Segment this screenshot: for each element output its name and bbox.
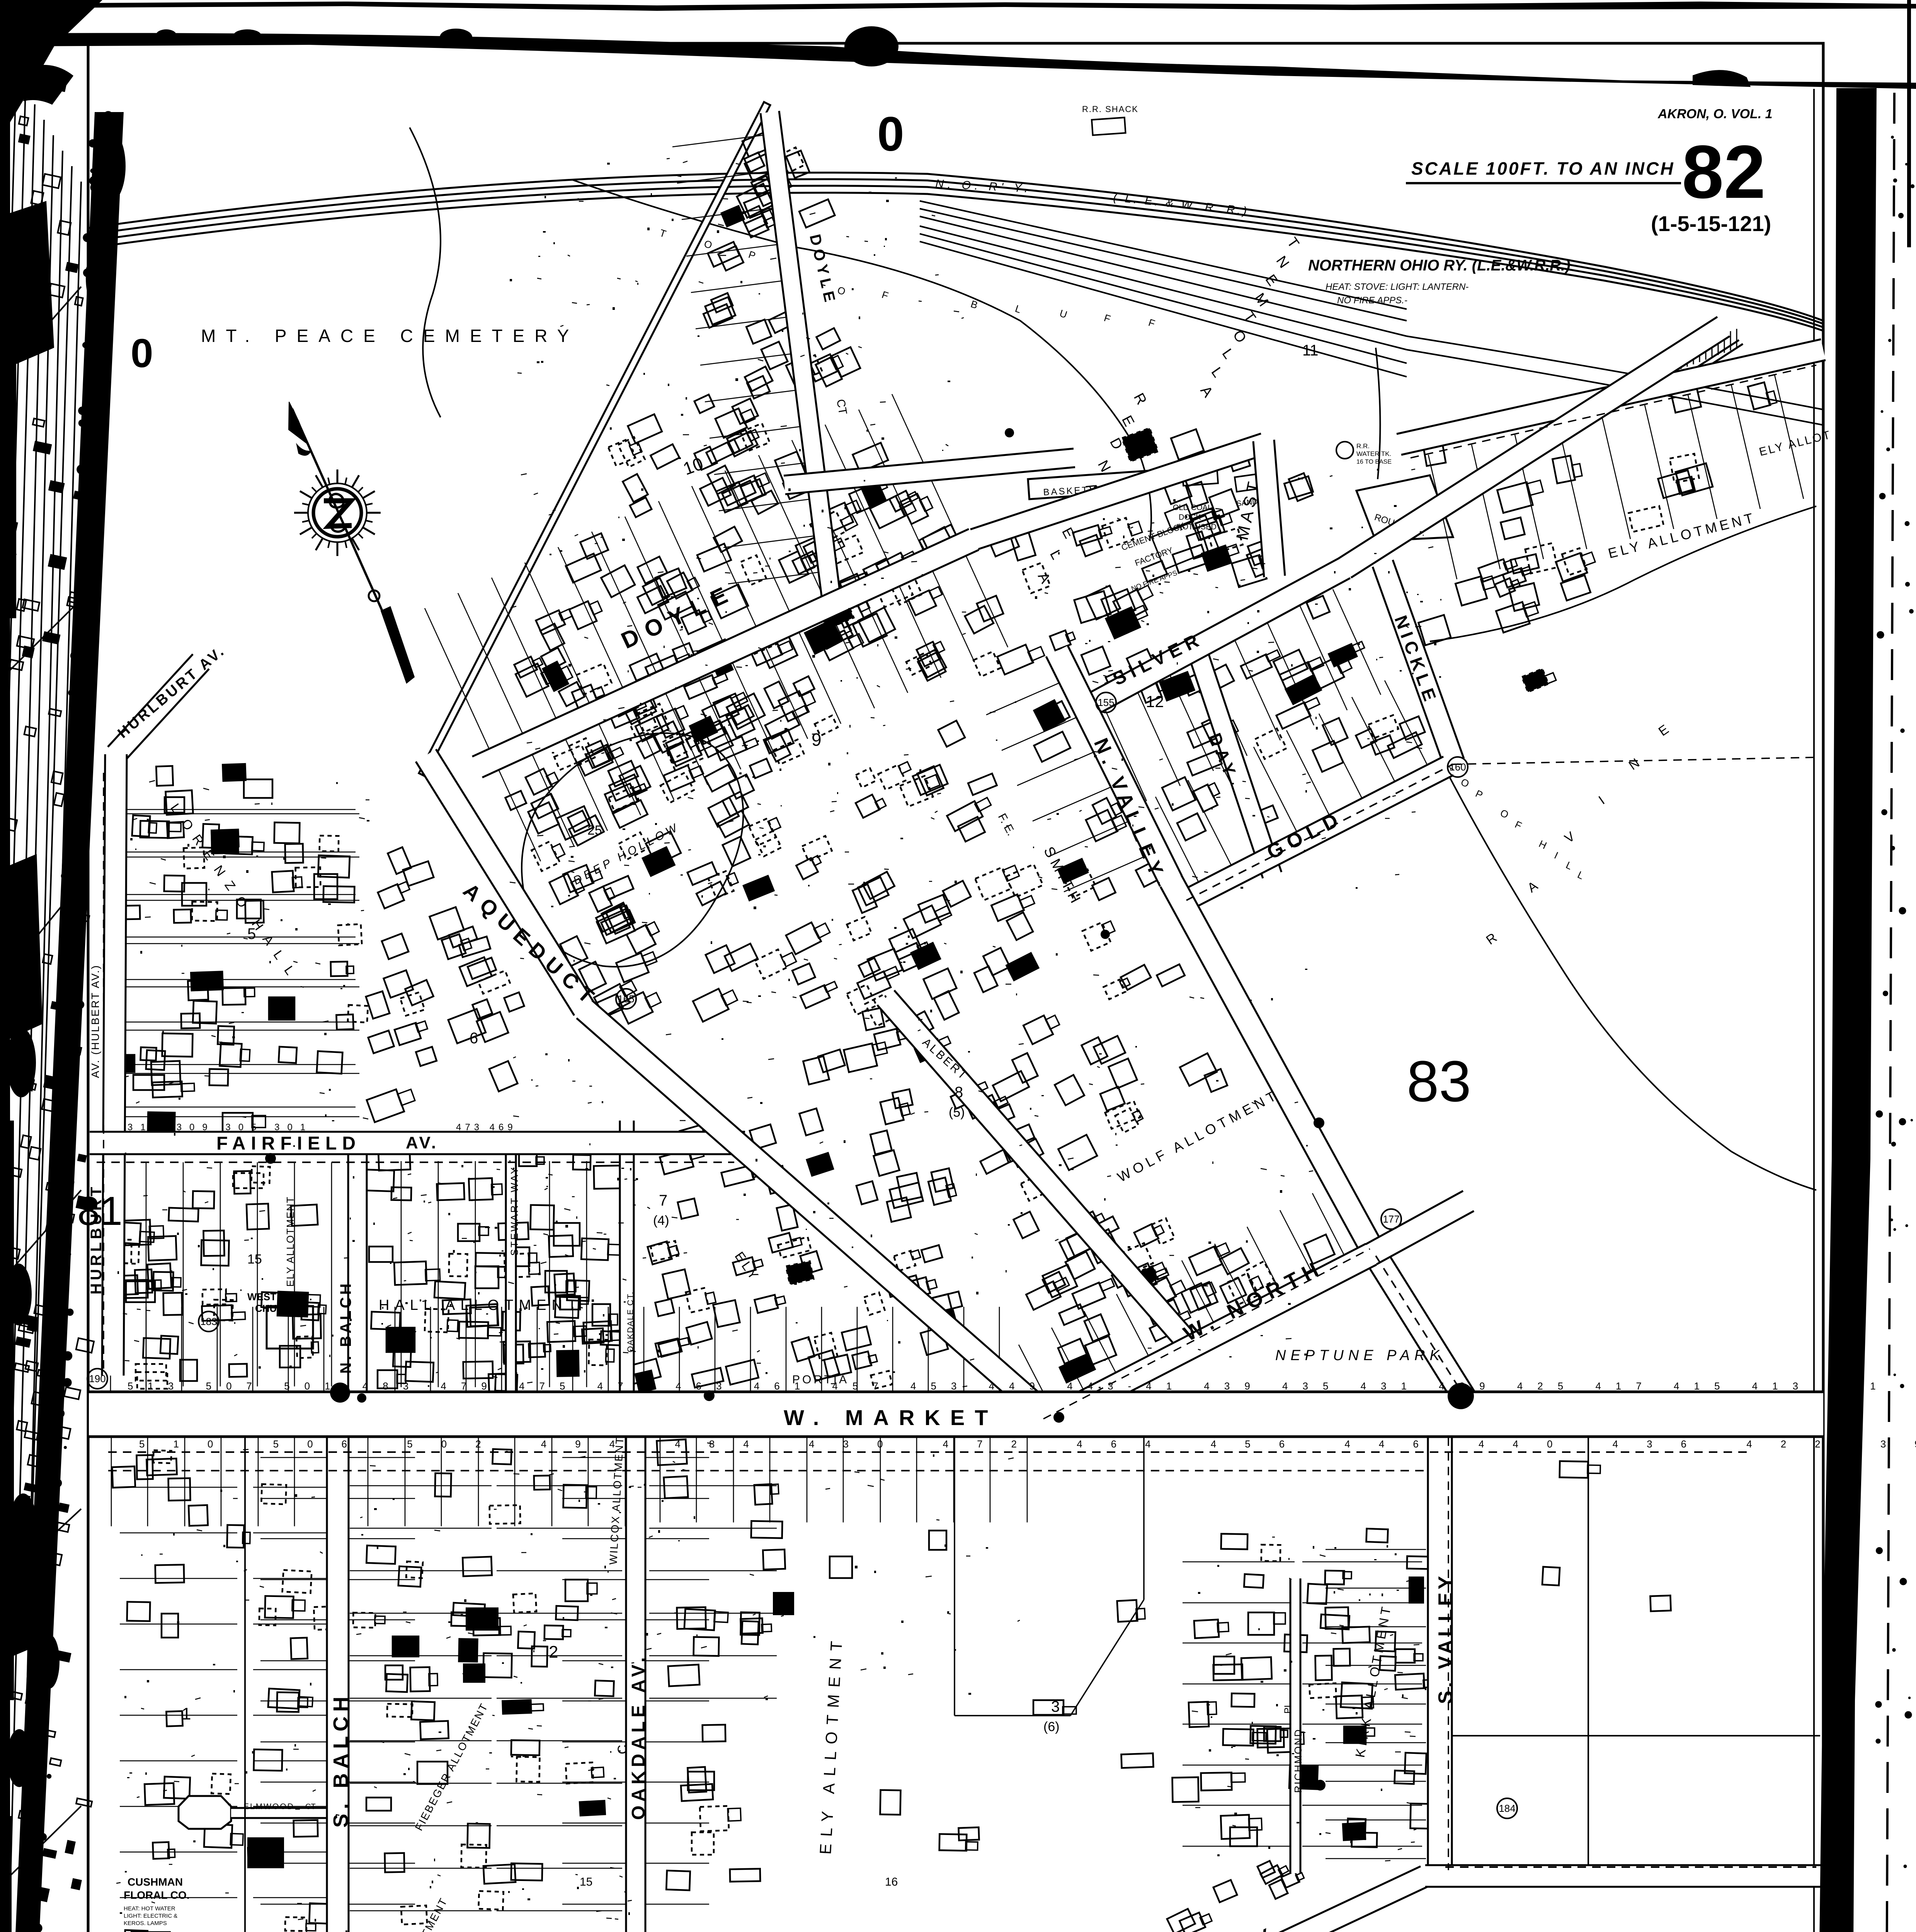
svg-text:473 469: 473 469 <box>456 1122 517 1133</box>
svg-text:3: 3 <box>1051 1698 1060 1715</box>
svg-text:1: 1 <box>182 1704 191 1723</box>
svg-text:PL.: PL. <box>1283 1700 1293 1714</box>
svg-text:WATER TK.: WATER TK. <box>1356 450 1391 457</box>
svg-text:C: C <box>615 1745 630 1754</box>
svg-text:CT: CT <box>834 398 849 415</box>
svg-text:S. BALCH: S. BALCH <box>329 1692 352 1828</box>
svg-text:177: 177 <box>1383 1213 1399 1225</box>
svg-text:313 309 305 301: 313 309 305 301 <box>128 1122 313 1133</box>
svg-text:25: 25 <box>587 823 602 838</box>
svg-text:NO FIRE APPS.-: NO FIRE APPS.- <box>1337 295 1407 306</box>
svg-text:N. BALCH: N. BALCH <box>337 1281 354 1374</box>
svg-text:7: 7 <box>659 1192 667 1209</box>
svg-text:15: 15 <box>247 1252 262 1267</box>
svg-text:AKRON, O. VOL. 1: AKRON, O. VOL. 1 <box>1657 107 1773 121</box>
svg-text:LIGHT: ELECTRIC &: LIGHT: ELECTRIC & <box>124 1913 177 1919</box>
svg-text:9: 9 <box>812 730 822 750</box>
svg-text:CT: CT <box>305 1803 316 1811</box>
svg-text:0: 0 <box>131 331 153 376</box>
svg-text:165: 165 <box>618 993 634 1005</box>
svg-text:16: 16 <box>885 1876 898 1888</box>
svg-text:MT. PEACE CEMETERY: MT. PEACE CEMETERY <box>201 326 579 346</box>
svg-text:510 506 502 494 484 430 472 46: 510 506 502 494 484 430 472 464 456 446 … <box>139 1438 1916 1450</box>
svg-text:AV. (HULBERT AV.): AV. (HULBERT AV.) <box>89 964 101 1078</box>
svg-text:AV.: AV. <box>406 1133 438 1152</box>
svg-text:FAIRFIELD: FAIRFIELD <box>216 1133 361 1154</box>
svg-text:8: 8 <box>955 1084 963 1101</box>
svg-text:(4): (4) <box>653 1213 669 1228</box>
svg-text:183: 183 <box>200 1316 217 1327</box>
svg-text:CUSHMAN: CUSHMAN <box>128 1876 183 1888</box>
svg-text:R.R. SHACK: R.R. SHACK <box>1082 104 1138 114</box>
svg-text:83: 83 <box>1407 1049 1471 1114</box>
svg-text:FLORAL CO.: FLORAL CO. <box>124 1889 190 1901</box>
svg-text:NORTHERN OHIO RY. (L.E.&W.R.R.: NORTHERN OHIO RY. (L.E.&W.R.R.) <box>1308 257 1571 274</box>
svg-text:WEST CONG.: WEST CONG. <box>247 1291 312 1303</box>
svg-text:190: 190 <box>89 1373 105 1384</box>
svg-text:OAKDALE AV.: OAKDALE AV. <box>628 1653 649 1820</box>
svg-text:PORTIA: PORTIA <box>792 1373 849 1386</box>
svg-text:NEPTUNE PARK: NEPTUNE PARK <box>1275 1347 1444 1364</box>
svg-text:ELY ALLOTMENT: ELY ALLOTMENT <box>284 1196 296 1287</box>
svg-text:HALL ALLOTMENT: HALL ALLOTMENT <box>379 1297 582 1313</box>
svg-text:82: 82 <box>1682 130 1766 214</box>
svg-text:6: 6 <box>470 1030 478 1047</box>
svg-text:155: 155 <box>1098 697 1114 708</box>
svg-text:CHURCH: CHURCH <box>255 1303 299 1314</box>
svg-text:15: 15 <box>580 1876 592 1888</box>
svg-text:ELMWOOD: ELMWOOD <box>243 1802 294 1811</box>
svg-text:HEAT: HOT WATER: HEAT: HOT WATER <box>124 1905 175 1912</box>
svg-text:(5): (5) <box>949 1105 965 1120</box>
svg-text:RICHMOND: RICHMOND <box>1292 1728 1304 1793</box>
svg-text:S.: S. <box>1434 1679 1457 1704</box>
svg-text:HEAT: STOVE: LIGHT: LANTERN-: HEAT: STOVE: LIGHT: LANTERN- <box>1326 282 1468 292</box>
svg-text:513 507 501 483 479 475 471 46: 513 507 501 483 479 475 471 463 461 457 … <box>128 1380 1890 1392</box>
svg-text:KEROS. LAMPS: KEROS. LAMPS <box>124 1920 167 1927</box>
svg-text:0: 0 <box>877 107 904 161</box>
svg-text:OAKDALE CT.: OAKDALE CT. <box>626 1291 635 1352</box>
svg-text:SCALE 100FT. TO AN INCH: SCALE 100FT. TO AN INCH <box>1411 158 1675 179</box>
svg-text:11: 11 <box>1302 342 1319 359</box>
svg-text:2: 2 <box>549 1643 558 1662</box>
svg-text:W. MARKET: W. MARKET <box>784 1405 998 1430</box>
svg-text:STEWART WAY: STEWART WAY <box>509 1166 520 1256</box>
svg-text:16 TO BASE: 16 TO BASE <box>1356 459 1392 465</box>
svg-text:81: 81 <box>77 1189 123 1234</box>
svg-text:(1-5-15-121): (1-5-15-121) <box>1651 211 1771 236</box>
svg-text:(6): (6) <box>1043 1719 1060 1734</box>
svg-text:160: 160 <box>1449 761 1466 773</box>
svg-text:184: 184 <box>1499 1803 1515 1814</box>
svg-text:5: 5 <box>247 925 256 942</box>
svg-text:R.R.: R.R. <box>1356 442 1370 450</box>
svg-text:VALLEY: VALLEY <box>1434 1573 1457 1669</box>
svg-text:12: 12 <box>1146 692 1164 711</box>
